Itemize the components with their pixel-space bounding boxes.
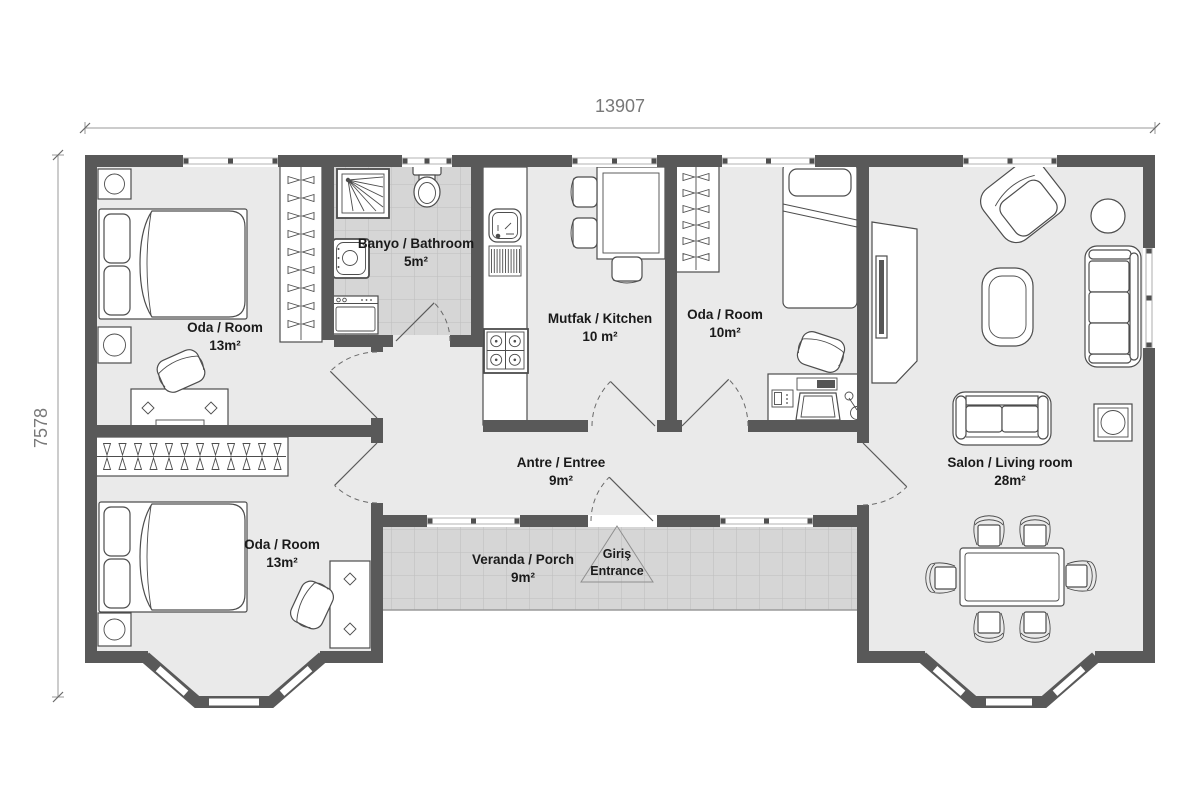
floor-plan-svg: Oda / Room 13m² Banyo / Bathroom 5m² Mut… <box>0 0 1200 800</box>
stove <box>484 329 528 373</box>
window <box>572 155 657 167</box>
shower <box>337 169 389 218</box>
wardrobe <box>673 164 719 272</box>
bathroom-label: Banyo / Bathroom <box>358 236 474 251</box>
end-table <box>1094 404 1132 441</box>
window <box>720 515 813 527</box>
porch-label: Veranda / Porch <box>472 552 574 567</box>
nightstand <box>98 613 131 646</box>
kitchen-chair <box>571 177 597 207</box>
kitchen-counter <box>483 167 527 425</box>
bedroom3-area: 13m² <box>266 555 298 570</box>
bedroom1-label: Oda / Room <box>187 320 263 335</box>
side-table-round <box>1091 199 1125 233</box>
dimension-top: 13907 <box>80 96 1160 134</box>
toilet <box>413 165 441 207</box>
outside-notch <box>383 610 857 663</box>
wardrobe <box>95 437 288 476</box>
window <box>722 155 815 167</box>
floor-plan: Oda / Room 13m² Banyo / Bathroom 5m² Mut… <box>0 0 1200 800</box>
nightstand <box>98 327 131 363</box>
dimension-height-label: 7578 <box>31 408 51 448</box>
double-bed <box>99 502 247 612</box>
kitchen-chair <box>571 218 597 248</box>
bedroom2-label: Oda / Room <box>687 307 763 322</box>
window <box>1143 248 1155 348</box>
window <box>183 155 278 167</box>
bedroom2-area: 10m² <box>709 325 741 340</box>
living-room-area: 28m² <box>994 473 1026 488</box>
desk <box>131 389 228 428</box>
kitchen-chair <box>612 257 642 283</box>
kitchen-area: 10 m² <box>582 329 618 344</box>
porch-area: 9m² <box>511 570 536 585</box>
sofa-three-seat <box>1085 246 1141 367</box>
kitchen-label: Mutfak / Kitchen <box>548 311 652 326</box>
wardrobe <box>280 165 322 342</box>
hallway-label: Antre / Entree <box>517 455 606 470</box>
bedroom1-area: 13m² <box>209 338 241 353</box>
window <box>427 515 520 527</box>
kitchen-table <box>597 167 665 259</box>
dining-table <box>960 548 1064 606</box>
tv-unit <box>872 222 917 383</box>
entrance-label-en: Entrance <box>590 564 644 578</box>
dimension-width-label: 13907 <box>595 96 645 116</box>
window <box>402 155 452 167</box>
desk <box>330 561 370 648</box>
entrance-opening <box>588 515 657 527</box>
coffee-table <box>982 268 1033 346</box>
bathroom-cabinet <box>333 296 378 334</box>
entrance-label-tr: Giriş <box>603 547 632 561</box>
bathroom-area: 5m² <box>404 254 429 269</box>
window <box>963 155 1057 167</box>
single-bed <box>783 163 857 308</box>
dimension-left: 7578 <box>31 150 64 702</box>
nightstand <box>98 169 131 199</box>
living-room-label: Salon / Living room <box>947 455 1072 470</box>
computer-desk <box>768 374 864 424</box>
double-bed <box>99 209 247 319</box>
bedroom3-label: Oda / Room <box>244 537 320 552</box>
loveseat <box>953 392 1051 445</box>
hallway-area: 9m² <box>549 473 574 488</box>
